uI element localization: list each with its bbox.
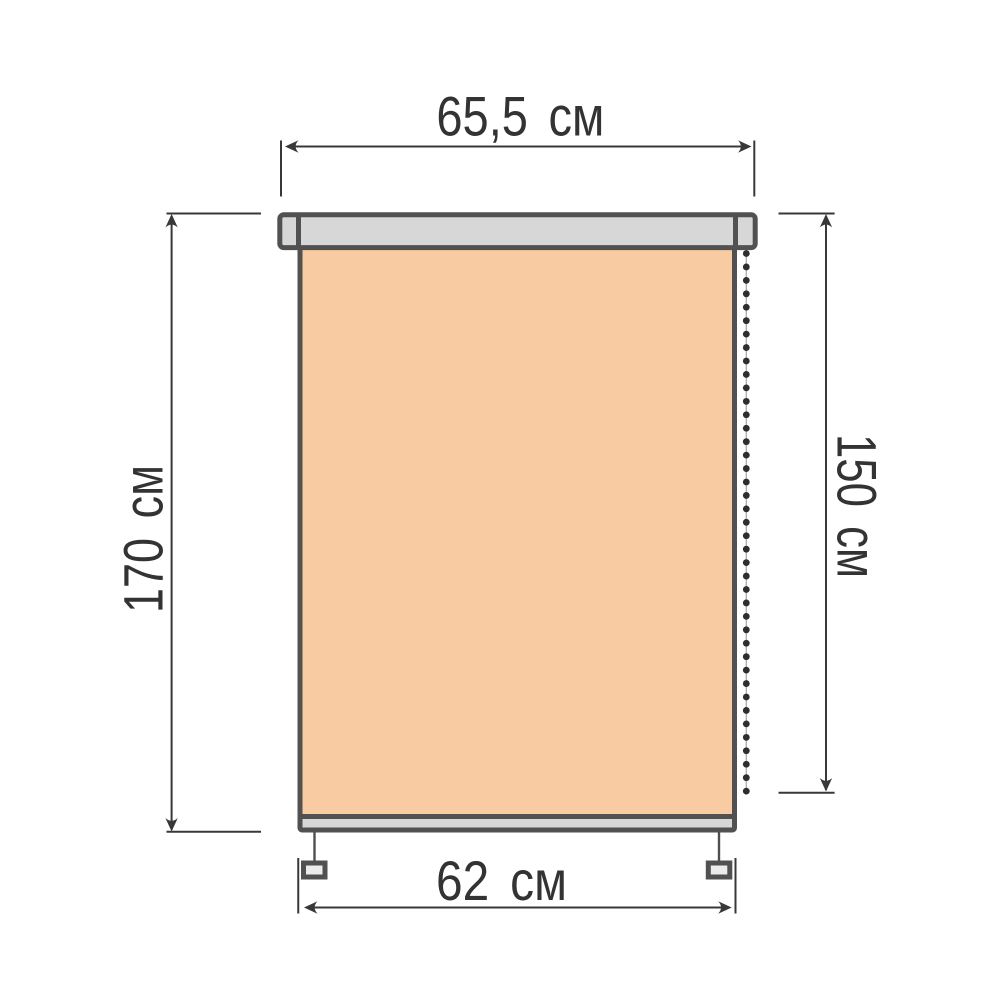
svg-text:65,5 см: 65,5 см — [436, 85, 604, 148]
svg-text:170 см: 170 см — [112, 465, 175, 613]
svg-text:150 см: 150 см — [826, 434, 889, 578]
svg-text:62 см: 62 см — [436, 849, 567, 912]
